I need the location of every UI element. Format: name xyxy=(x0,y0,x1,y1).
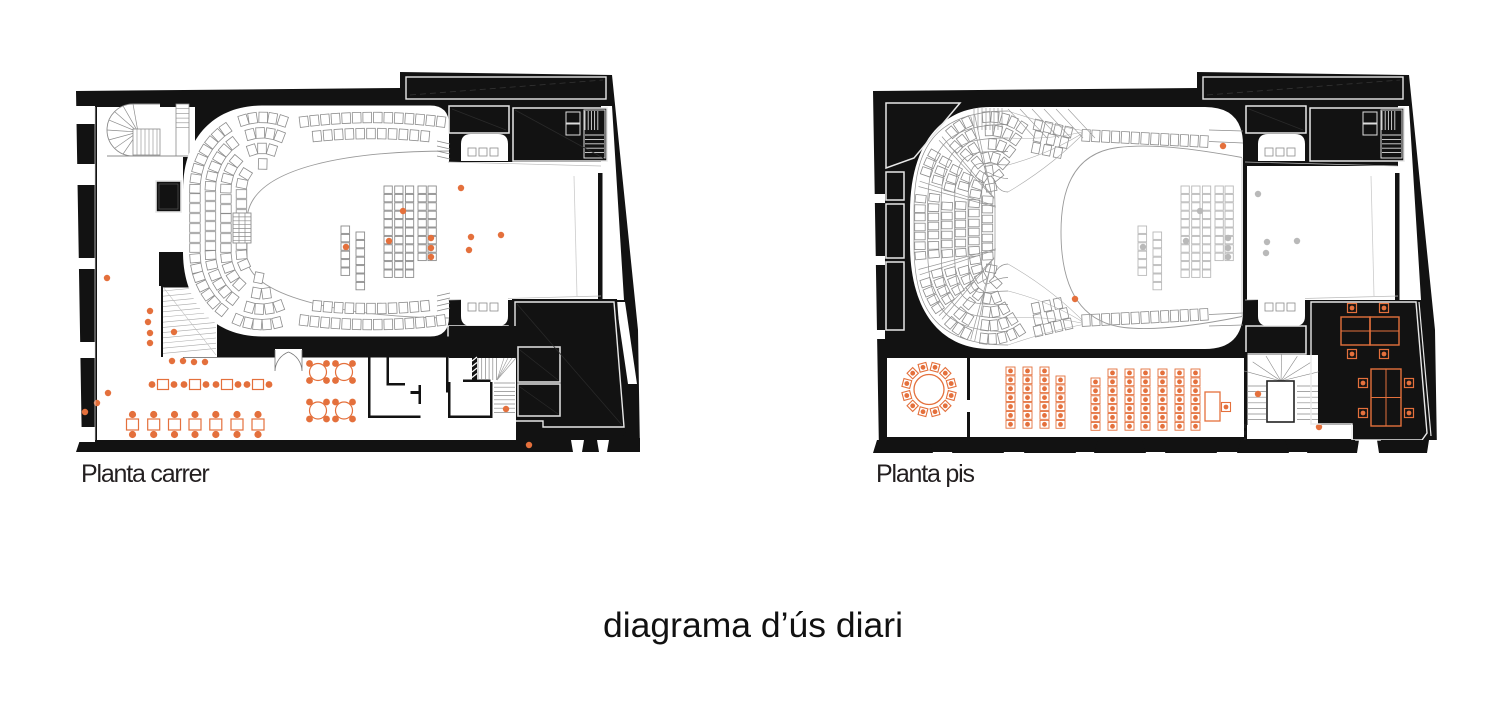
svg-text:diagrama d’ús diari: diagrama d’ús diari xyxy=(603,605,903,645)
svg-text:Planta pis: Planta pis xyxy=(876,460,974,488)
svg-text:Planta carrer: Planta carrer xyxy=(81,460,209,488)
